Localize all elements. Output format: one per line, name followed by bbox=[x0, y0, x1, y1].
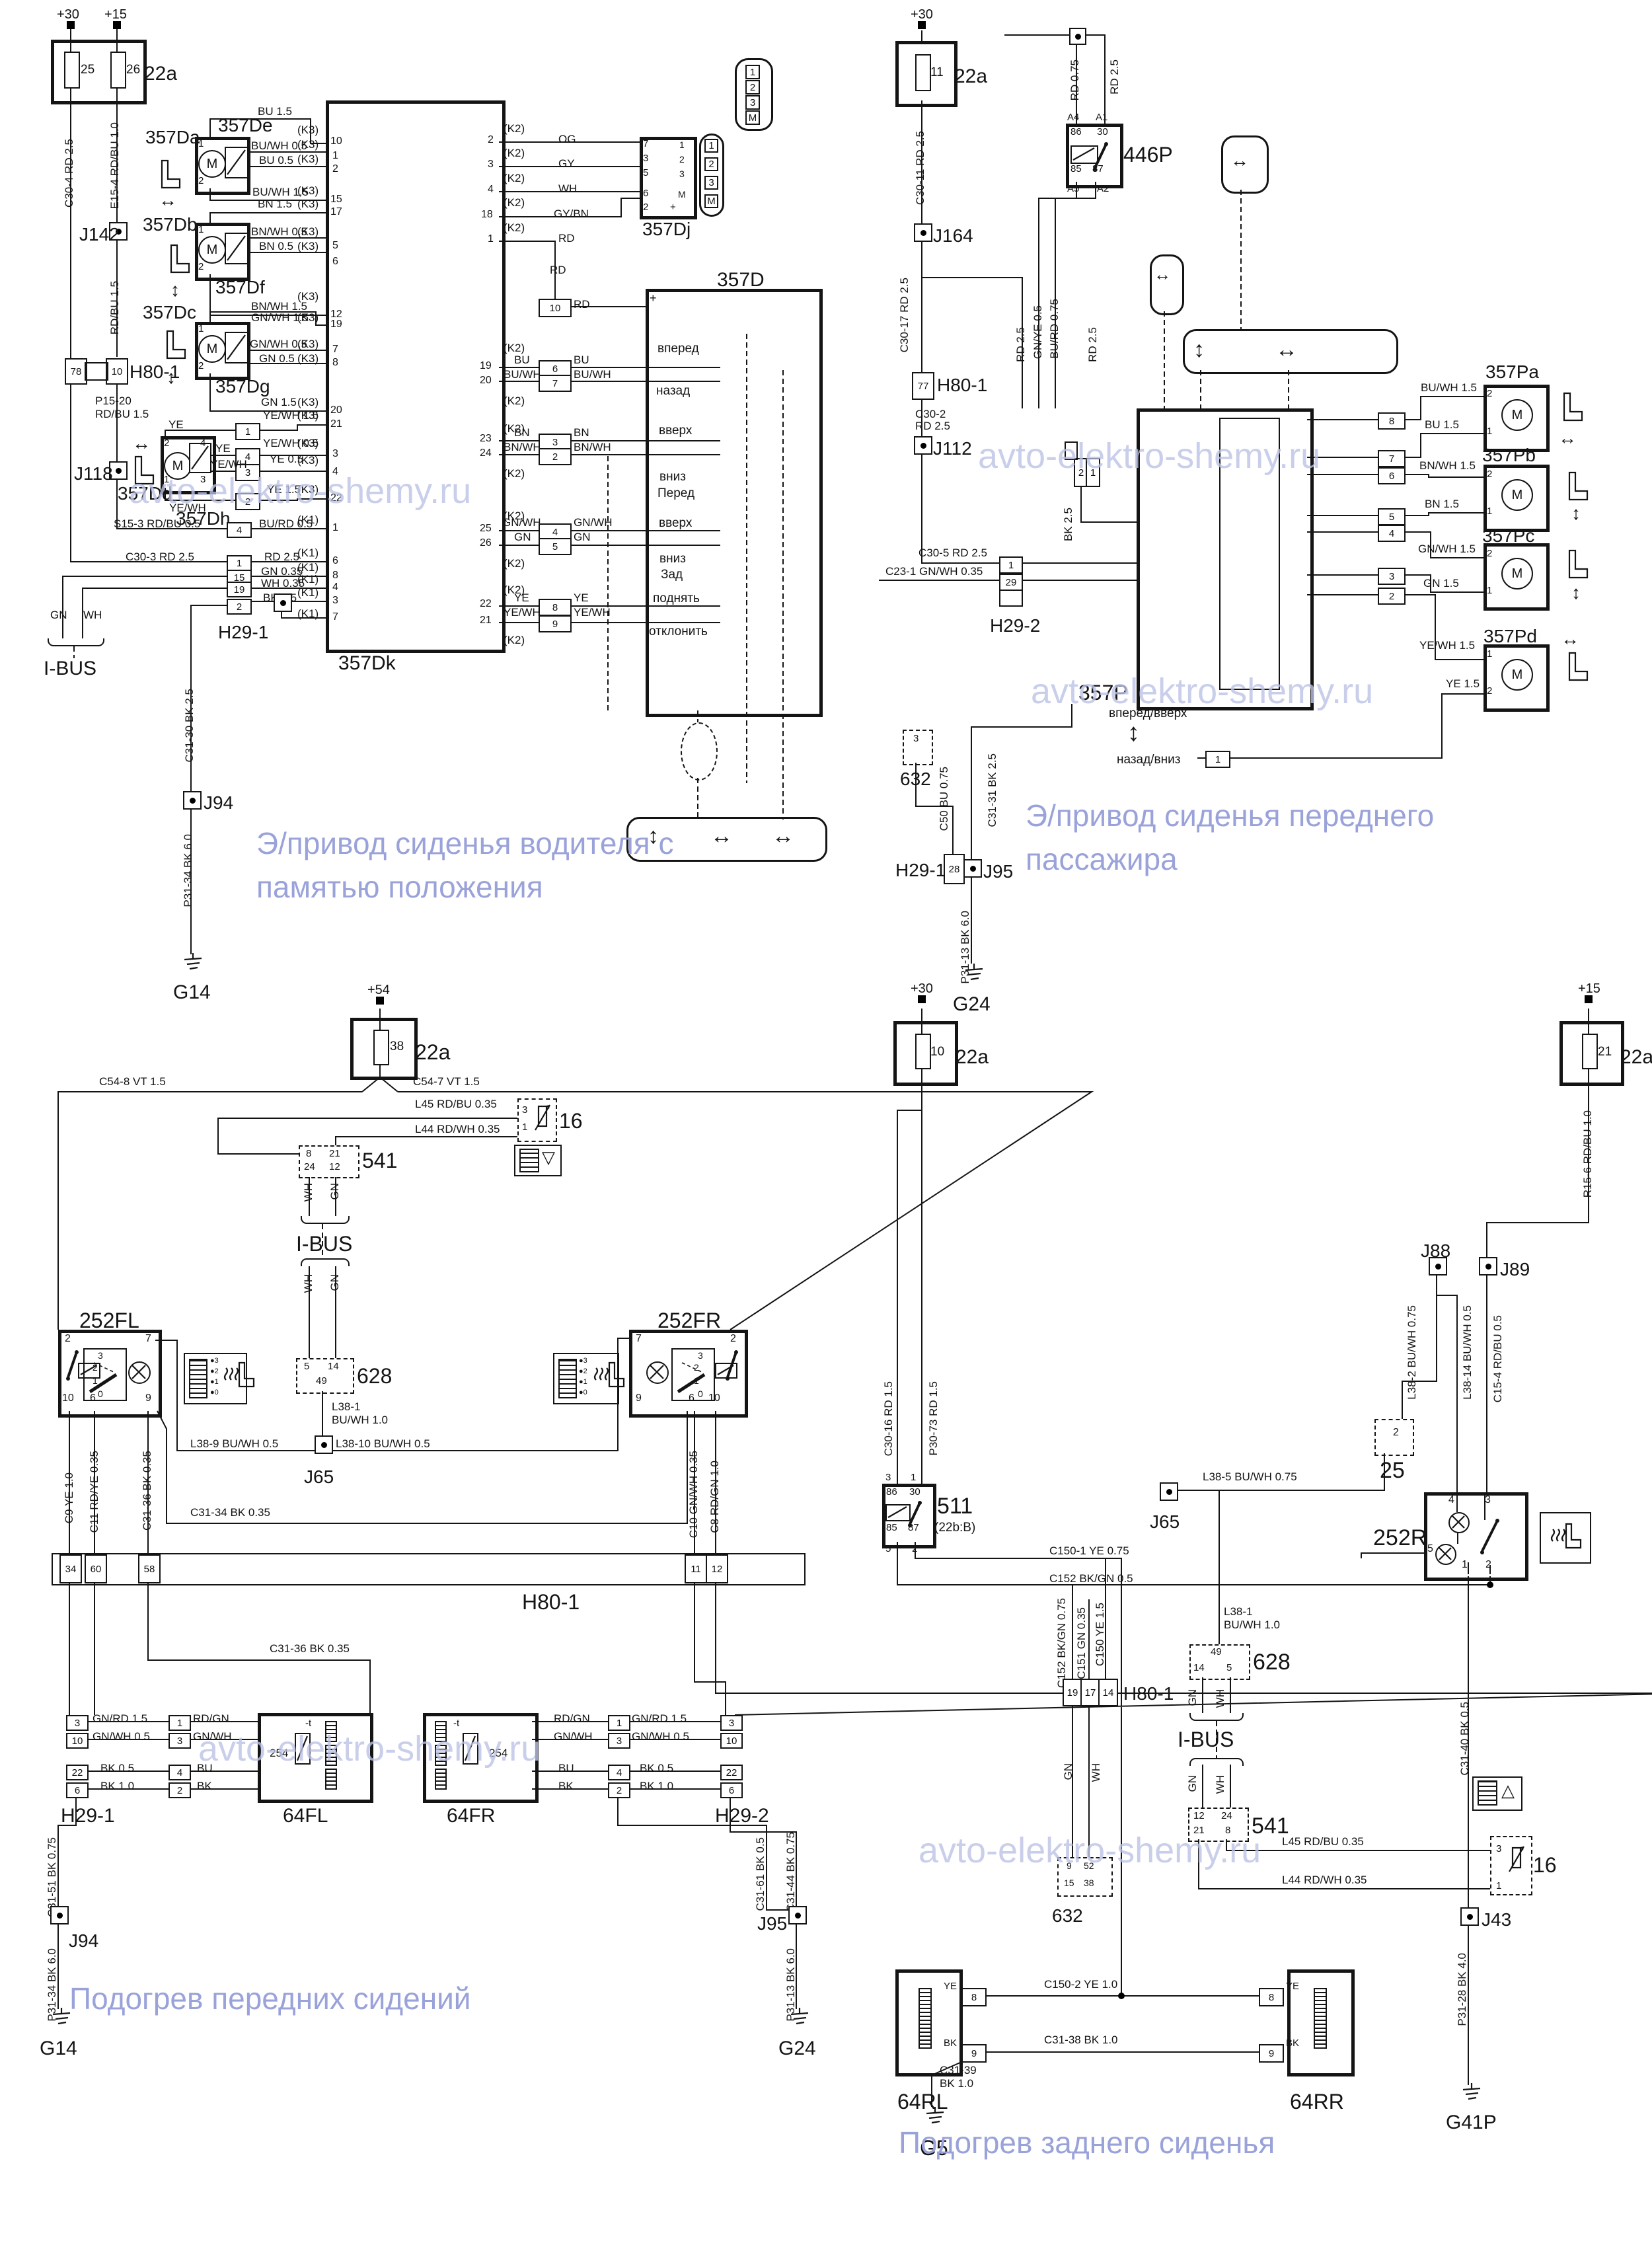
pk1-7: 7 bbox=[332, 612, 338, 623]
h29-1-q1-pin19: 19 bbox=[227, 582, 252, 597]
k2b-6: (K2) bbox=[504, 558, 525, 570]
module-628-q3-p5: 5 bbox=[304, 1361, 309, 1372]
dir-vverh1: вверх bbox=[659, 424, 692, 438]
w-og: OG bbox=[558, 133, 576, 145]
relay-446p-86: 86 bbox=[1070, 127, 1082, 137]
w-gn-ibus-q1: GN bbox=[50, 609, 67, 621]
fl-d2: 2 bbox=[93, 1363, 98, 1373]
sensor-16-q3-pin1: 1 bbox=[522, 1122, 527, 1133]
w-c31-31: C31-31 BK 2.5 bbox=[987, 753, 998, 827]
adjust-arrow-h: ↔ bbox=[710, 825, 733, 849]
ibus-brace-q3-bot bbox=[301, 1258, 350, 1266]
pa-p2: 2 bbox=[1487, 389, 1492, 399]
w-c152-05: C152 BK/GN 0.5 bbox=[1049, 1573, 1133, 1585]
k3-3: (K3) bbox=[297, 153, 319, 165]
h29-2-q2-label: H29-2 bbox=[990, 616, 1040, 635]
arrow-357pb: ↕ bbox=[1571, 504, 1581, 523]
diagram-title-0: Э/привод сиденья водителя с bbox=[256, 827, 674, 859]
pk1-1: 1 bbox=[332, 523, 338, 534]
junction-j118-label: J118 bbox=[74, 464, 113, 483]
fuse-26-label: 26 bbox=[126, 63, 140, 77]
dj-legend-m: M bbox=[704, 194, 718, 208]
fr-d2: 2 bbox=[694, 1363, 699, 1373]
w-bn05: BN 0.5 bbox=[259, 241, 293, 252]
memory-btn-1: 1 bbox=[745, 65, 760, 79]
module-628-q3-p49: 49 bbox=[316, 1376, 327, 1387]
k3-9: (K3) bbox=[297, 312, 319, 324]
adjust-arrow-h2: ↔ bbox=[772, 825, 794, 849]
pk2-18: 18 bbox=[481, 209, 493, 221]
legend-right-heatseat bbox=[592, 1360, 626, 1394]
w-l45-q3: L45 RD/BU 0.35 bbox=[415, 1098, 497, 1110]
switch-252r-box bbox=[1424, 1492, 1528, 1581]
module-541-q3-p24: 24 bbox=[304, 1162, 315, 1172]
w-bk10-l: BK 1.0 bbox=[100, 1780, 134, 1792]
k2a-1: (K2) bbox=[504, 123, 525, 135]
ibus-q3-label: I-BUS bbox=[296, 1233, 352, 1256]
conn-fl-p2: 2 bbox=[169, 1782, 191, 1798]
fl-p2: 2 bbox=[65, 1334, 71, 1345]
w-rdgn-r: RD/GN bbox=[554, 1713, 590, 1725]
conn-fr-p2: 2 bbox=[608, 1782, 630, 1798]
ground-g24-q3 bbox=[788, 2008, 811, 2031]
pcol-6: 6 bbox=[1378, 467, 1406, 484]
seat-icon-357pb bbox=[1565, 471, 1589, 507]
ecu-357dk bbox=[326, 100, 506, 653]
relay-511-label: 511 bbox=[937, 1495, 973, 1519]
supply-15-node bbox=[113, 21, 121, 29]
fuse-21 bbox=[1582, 1034, 1598, 1069]
seat-icon-357pd bbox=[1565, 651, 1589, 687]
h80-1-q4-p14: 14 bbox=[1098, 1679, 1118, 1706]
heater-64rl-p8: 8 bbox=[961, 1988, 987, 2006]
w-gn-q4a: GN bbox=[1063, 1763, 1074, 1780]
h80-1-q1-pin10: 10 bbox=[106, 358, 128, 385]
mini-arrow: ↔ bbox=[1230, 151, 1249, 170]
k3-10: (K3) bbox=[297, 338, 319, 350]
dir-nazad: назад bbox=[656, 385, 690, 398]
w-c31-36a: C31-36 BK 0.35 bbox=[141, 1451, 153, 1531]
memory-btn-3: 3 bbox=[745, 95, 760, 110]
seat-icon-357pa bbox=[1559, 391, 1583, 428]
fuse-11 bbox=[915, 54, 931, 91]
w-c31-39a: C31-39 bbox=[940, 2065, 977, 2076]
relay-511-86: 86 bbox=[886, 1487, 897, 1498]
h29-2-q2-pin29: 29 bbox=[999, 574, 1023, 591]
conn-fl-p4: 4 bbox=[169, 1765, 191, 1780]
dj-p6: 6 bbox=[643, 188, 648, 199]
w-gnrd15-l: GN/RD 1.5 bbox=[93, 1713, 147, 1725]
w-bk25-q2: BK 2.5 bbox=[1063, 508, 1074, 541]
junction-j43-label: J43 bbox=[1482, 1910, 1511, 1929]
dir-podnyat: поднять bbox=[653, 592, 700, 605]
conn-fl-p3: 3 bbox=[169, 1733, 191, 1749]
wiring-diagram-page: +30+15252622aC30-4 RD 2.5E15-4 RD/BU 1.0… bbox=[0, 0, 1652, 2247]
h80-1-q1-pin78: 78 bbox=[65, 358, 87, 385]
relay-511-p2: 2 bbox=[912, 1544, 917, 1554]
c-357d-plus: + bbox=[650, 292, 657, 305]
conn-632-q2-label: 632 bbox=[900, 769, 931, 788]
pb-p1: 1 bbox=[1487, 506, 1492, 517]
h29-1-q3-p6: 6 bbox=[66, 1782, 89, 1798]
c-357dd-pin2: 2 bbox=[164, 438, 169, 449]
fusebox-22a-q4r-label: 22a bbox=[1620, 1047, 1652, 1068]
w-ye-a: YE bbox=[169, 419, 184, 431]
pk3-1: 1 bbox=[332, 151, 338, 162]
thermistor-icon-q3 bbox=[534, 1102, 551, 1136]
k1-1: (K1) bbox=[297, 514, 319, 526]
w-bk05-r: BK 0.5 bbox=[640, 1763, 673, 1774]
display-icon-q3-bars bbox=[519, 1149, 539, 1172]
w-c30-3: C30-3 RD 2.5 bbox=[126, 551, 194, 563]
pk3-8: 8 bbox=[332, 358, 338, 369]
heater-64rr-p8: 8 bbox=[1259, 1988, 1284, 2006]
legend-left-3: ●3 bbox=[210, 1357, 219, 1365]
dir-pered: Перед bbox=[657, 487, 695, 500]
ibus-brace-q1 bbox=[48, 638, 104, 646]
relay-446p-a2: A2 bbox=[1097, 184, 1109, 194]
pk3-10: 10 bbox=[330, 136, 342, 147]
w-c23-1: C23-1 GN/WH 0.35 bbox=[885, 566, 983, 578]
supply-30-q4-label: +30 bbox=[911, 982, 933, 996]
legend-left-0: ●0 bbox=[210, 1389, 219, 1397]
pk1-8: 8 bbox=[332, 570, 338, 582]
pd-p1: 1 bbox=[1487, 649, 1492, 660]
heater-64fl-label: 64FL bbox=[283, 1806, 328, 1827]
k1-4: (K1) bbox=[297, 574, 319, 586]
dir-otklonit: отклонить bbox=[649, 625, 708, 638]
h80-1-q4-p19: 19 bbox=[1063, 1679, 1082, 1706]
heater-64fr-label: 64FR bbox=[447, 1806, 495, 1827]
ground-g41p-label: G41P bbox=[1446, 2112, 1497, 2133]
display-icon-q3-tri: ▽ bbox=[542, 1149, 555, 1166]
relay-511-note: (22b:B) bbox=[934, 1521, 975, 1535]
w-yewh-l: YE/WH bbox=[504, 607, 541, 619]
w-c30-11: C30-11 RD 2.5 bbox=[915, 131, 926, 205]
w-rd25: RD 2.5 bbox=[264, 551, 299, 563]
cell-7: 7 bbox=[539, 375, 572, 392]
w-wh-q4b: WH bbox=[1215, 1689, 1226, 1708]
relay-446p-a1: A1 bbox=[1096, 112, 1108, 123]
w-bn15-q2: BN 1.5 bbox=[1425, 498, 1459, 510]
module-541-q4-p12: 12 bbox=[1193, 1811, 1205, 1821]
ibus-brace-q4-bot bbox=[1189, 1758, 1244, 1766]
relay-511-p3: 3 bbox=[885, 1472, 891, 1483]
w-gnrd15-r: GN/RD 1.5 bbox=[632, 1713, 687, 1725]
w-c30-2b: RD 2.5 bbox=[915, 420, 950, 432]
dir-vniz2: вниз bbox=[659, 552, 686, 566]
heater-64rr-p9: 9 bbox=[1259, 2044, 1284, 2063]
k2a-4: (K2) bbox=[504, 197, 525, 209]
conn-fl-p1: 1 bbox=[169, 1715, 191, 1731]
fuse-11-label: 11 bbox=[930, 66, 944, 79]
k1-5: (K1) bbox=[297, 587, 319, 599]
sensor-16-q3-label: 16 bbox=[559, 1110, 583, 1133]
k3-12: (K3) bbox=[297, 397, 319, 408]
arrow-357da: ↔ bbox=[159, 190, 177, 209]
junction-j65-q3-label: J65 bbox=[304, 1467, 334, 1486]
supply-15-q4-node bbox=[1585, 995, 1593, 1003]
relay-511-85: 85 bbox=[886, 1523, 897, 1533]
c-357pb-motor: M bbox=[1501, 479, 1533, 511]
cell-10: 10 bbox=[539, 299, 572, 317]
c-357da-label: 357Da bbox=[145, 128, 200, 147]
fuse-21-label: 21 bbox=[1598, 1046, 1612, 1059]
w-p15-20b: RD/BU 1.5 bbox=[95, 408, 149, 420]
display-icon-q4-bars bbox=[1478, 1780, 1497, 1806]
w-c31-61: C31-61 BK 0.5 bbox=[755, 1837, 767, 1911]
junction-j112-label: J112 bbox=[933, 439, 972, 458]
w-wh-q4a: WH bbox=[1090, 1763, 1102, 1782]
panel-arrow-h: ↔ bbox=[1275, 338, 1298, 362]
w-l38-1d: BU/WH 1.0 bbox=[1224, 1619, 1280, 1631]
dj-plus: + bbox=[670, 202, 676, 213]
c-357d-label: 357D bbox=[717, 270, 765, 291]
ground-g14-q1 bbox=[182, 953, 204, 976]
ibus-q1-label: I-BUS bbox=[44, 658, 96, 679]
junction-j164-label: J164 bbox=[933, 226, 973, 245]
w-rdgn-l: RD/GN bbox=[193, 1713, 229, 1725]
w-rd25-c: RD 2.5 bbox=[1087, 327, 1099, 362]
h80-1-q3-label: H80-1 bbox=[522, 1591, 580, 1614]
pk3-3: 3 bbox=[332, 449, 338, 460]
ground-g24-q3-label: G24 bbox=[778, 2038, 816, 2059]
c-357pb-label: 357Pb bbox=[1482, 445, 1536, 465]
w-bk05-l: BK 0.5 bbox=[100, 1763, 134, 1774]
k3-4: (K3) bbox=[297, 185, 319, 197]
ibus-brace-q4-top bbox=[1189, 1713, 1244, 1721]
junction-j89 bbox=[1479, 1257, 1497, 1276]
module-628-q3-label: 628 bbox=[357, 1365, 392, 1388]
legend-right-3: ●3 bbox=[579, 1357, 587, 1365]
relay-511-p1: 1 bbox=[911, 1472, 916, 1483]
relay-446p-85: 85 bbox=[1070, 164, 1082, 174]
w-burd075: BU/RD 0.75 bbox=[1049, 299, 1061, 359]
w-c9: C9 YE 1.0 bbox=[63, 1472, 75, 1523]
k1-6: (K1) bbox=[297, 608, 319, 620]
module-628-q4-label: 628 bbox=[1253, 1651, 1291, 1675]
dj-legend-3: 3 bbox=[704, 176, 718, 190]
r-p2: 2 bbox=[1485, 1560, 1491, 1571]
arrow-357pd: ↔ bbox=[1561, 629, 1579, 648]
r-p4: 4 bbox=[1448, 1495, 1454, 1506]
w-buwh-r: BU/WH bbox=[574, 369, 611, 381]
pk1-4: 4 bbox=[332, 582, 338, 593]
h29-1-q1-pin2: 2 bbox=[227, 599, 252, 615]
panel-arrow-v: ↕ bbox=[1193, 338, 1205, 362]
w-bnwh15-q2: BN/WH 1.5 bbox=[1419, 460, 1476, 472]
w-bnwh-r: BN/WH bbox=[574, 441, 611, 453]
conn-632-q2-pin3: 3 bbox=[913, 734, 919, 744]
dot-ye-join bbox=[1118, 1993, 1125, 1999]
ecu-357dk-label: 357Dk bbox=[338, 653, 396, 674]
junction-j65-q4-label: J65 bbox=[1150, 1512, 1180, 1531]
pk2-1: 1 bbox=[488, 234, 494, 245]
dir-arrow-q2: ↕ bbox=[1127, 720, 1140, 747]
relay-446p-87: 87 bbox=[1092, 164, 1104, 174]
cell-5: 5 bbox=[539, 538, 572, 555]
conn-fr-p4: 4 bbox=[608, 1765, 630, 1780]
pk2-23: 23 bbox=[480, 434, 492, 445]
sensor-16-q4-p1: 1 bbox=[1496, 1881, 1501, 1891]
ground-g14-q1-label: G14 bbox=[173, 982, 211, 1003]
junction-j88 bbox=[1429, 1257, 1447, 1276]
w-c150: C150 YE 1.5 bbox=[1094, 1603, 1106, 1666]
k3-11: (K3) bbox=[297, 353, 319, 365]
dj-c2: 2 bbox=[679, 155, 685, 165]
w-s15-3: S15-3 RD/BU 0.5 bbox=[114, 518, 200, 530]
cell-8: 8 bbox=[539, 599, 572, 616]
k3-7: (K3) bbox=[297, 241, 319, 252]
w-c31-44: C31-44 BK 0.75 bbox=[785, 1832, 797, 1912]
dir-nazad-vniz: назад/вниз bbox=[1117, 753, 1180, 767]
fl-dial bbox=[83, 1348, 127, 1401]
w-l38-1a: L38-1 bbox=[332, 1401, 360, 1413]
pk3-5: 5 bbox=[332, 241, 338, 252]
switch-357dj-label: 357Dj bbox=[642, 219, 691, 239]
h80-1-q4-p17: 17 bbox=[1080, 1679, 1100, 1706]
h29-1-q2-pin28: 28 bbox=[944, 854, 965, 884]
relay-446p-label: 446P bbox=[1123, 144, 1173, 167]
pk1-6: 6 bbox=[332, 556, 338, 567]
supply-30-q2-label: +30 bbox=[911, 8, 933, 22]
fr-d0: 0 bbox=[698, 1389, 703, 1399]
pcol-8: 8 bbox=[1378, 412, 1406, 430]
h29-1-q3-p3: 3 bbox=[66, 1715, 89, 1731]
supply-30-q4-node bbox=[918, 995, 926, 1003]
w-p15-20a: P15-20 bbox=[95, 395, 131, 407]
pk3-2: 2 bbox=[332, 164, 338, 175]
w-bu-l: BU bbox=[514, 354, 530, 366]
diagram-title-2: Э/привод сиденья переднего bbox=[1026, 800, 1434, 831]
supply-30-label: +30 bbox=[57, 8, 79, 22]
dj-legend-1: 1 bbox=[704, 139, 718, 153]
diagram-title-3: пассажира bbox=[1026, 843, 1178, 875]
k2b-4: (K2) bbox=[504, 468, 525, 480]
module-541-q4-p24: 24 bbox=[1221, 1811, 1232, 1821]
w-bn-l: BN bbox=[514, 427, 530, 439]
cell-9: 9 bbox=[539, 615, 572, 632]
k2a-2: (K2) bbox=[504, 147, 525, 159]
fuse-26 bbox=[110, 52, 126, 89]
legend-left-heatseat bbox=[222, 1360, 256, 1394]
c-357dc-motor: M bbox=[198, 335, 226, 363]
fl-p9: 9 bbox=[145, 1393, 151, 1404]
k2a-5: (K2) bbox=[504, 222, 525, 234]
w-bnwh-l: BN/WH bbox=[504, 441, 541, 453]
ground-g24-q2 bbox=[963, 964, 985, 987]
dj-p5: 5 bbox=[643, 168, 648, 178]
pc-p2: 2 bbox=[1487, 549, 1492, 559]
fusebox-22a-q3-label: 22a bbox=[415, 1042, 450, 1064]
w-l44-q4: L44 RD/WH 0.35 bbox=[1282, 1874, 1367, 1886]
w-gn-q4c: GN bbox=[1187, 1775, 1199, 1792]
module-541-q3-p12: 12 bbox=[329, 1162, 340, 1172]
w-gnwh-r: GN/WH bbox=[574, 517, 613, 529]
pd-p2: 2 bbox=[1487, 686, 1492, 697]
w-c31-36b: C31-36 BK 0.35 bbox=[270, 1643, 350, 1655]
junction-j94-q1 bbox=[183, 791, 202, 810]
junction-j95-q2-label: J95 bbox=[983, 862, 1013, 881]
junction-j112 bbox=[914, 436, 932, 455]
supply-54-node bbox=[376, 997, 384, 1005]
fl-lamp bbox=[128, 1361, 151, 1384]
r-switch-arm bbox=[1479, 1517, 1501, 1556]
display-icon-q4-tri: △ bbox=[1501, 1782, 1515, 1800]
heater-64fl-t: -t bbox=[305, 1718, 311, 1729]
w-gn05: GN 0.5 bbox=[259, 353, 295, 365]
heat-icon-252r bbox=[1549, 1521, 1583, 1555]
junction-j95-q3-label: J95 bbox=[757, 1914, 787, 1933]
diagram-title-5: Подогрев заднего сиденья bbox=[899, 2127, 1275, 2158]
c-357dc-label: 357Dc bbox=[143, 303, 196, 322]
pk1-3: 3 bbox=[332, 595, 338, 607]
fr-d1: 1 bbox=[694, 1376, 699, 1386]
w-p31-34: P31-34 BK 6.0 bbox=[182, 834, 194, 907]
w-gnwh05-l: GN/WH 0.5 bbox=[93, 1731, 150, 1743]
site-watermark-4: avto-elektro-shemy.ru bbox=[919, 1832, 1261, 1870]
conn-fr-p3: 3 bbox=[608, 1733, 630, 1749]
pcol-7: 7 bbox=[1378, 450, 1406, 467]
w-c54-7: C54-7 VT 1.5 bbox=[413, 1076, 480, 1088]
w-rdbu-15: RD/BU 1.5 bbox=[109, 281, 121, 334]
w-gnwh15-q2: GN/WH 1.5 bbox=[1418, 543, 1476, 555]
legend-right-bars bbox=[558, 1359, 577, 1398]
relay-446p-a5: A5 bbox=[1067, 184, 1079, 194]
k3-5: (K3) bbox=[297, 198, 319, 210]
dj-c3: 3 bbox=[679, 169, 685, 179]
site-watermark-0: avto-elektro-shemy.ru bbox=[129, 473, 471, 510]
h29-1-q1-pin4: 4 bbox=[227, 522, 252, 538]
h80-1-q2-label: H80-1 bbox=[937, 375, 987, 395]
dir-vniz1: вниз bbox=[659, 471, 686, 484]
supply-15-q4-label: +15 bbox=[1578, 982, 1600, 996]
relay-446p-30: 30 bbox=[1097, 127, 1108, 137]
w-c152-075: C152 BK/GN 0.75 bbox=[1056, 1598, 1068, 1688]
h29-2-q3-label: H29-2 bbox=[715, 1806, 769, 1827]
arrow-357dd: ↔ bbox=[132, 434, 151, 453]
dj-c1: 1 bbox=[679, 140, 685, 150]
junction-j65-q3 bbox=[315, 1435, 333, 1454]
k2b-1: (K2) bbox=[504, 342, 525, 354]
k3-13: (K3) bbox=[297, 410, 319, 422]
legend-right-0: ●0 bbox=[579, 1389, 587, 1397]
joystick-knob bbox=[681, 722, 718, 781]
fl-p10: 10 bbox=[62, 1393, 74, 1404]
conn-fr-p1: 1 bbox=[608, 1715, 630, 1731]
k3-15: (K3) bbox=[297, 455, 319, 467]
pk2-26: 26 bbox=[480, 538, 492, 549]
h29-2-q2-pin1: 1 bbox=[999, 556, 1023, 574]
junction-j142-label: J142 bbox=[79, 225, 120, 244]
w-yewh-r: YE/WH bbox=[574, 607, 611, 619]
dj-legend-2: 2 bbox=[704, 157, 718, 171]
pk3-19: 19 bbox=[330, 319, 342, 330]
fuse-38-label: 38 bbox=[390, 1040, 404, 1053]
c-357db-sensor bbox=[225, 233, 248, 264]
w-gn-2: GN bbox=[329, 1274, 341, 1291]
w-ye-b: YE bbox=[215, 443, 231, 455]
c-357db-pin1: 1 bbox=[198, 225, 204, 235]
fuse-25-label: 25 bbox=[81, 63, 94, 77]
r-p3: 3 bbox=[1485, 1495, 1491, 1506]
fuse-38 bbox=[373, 1030, 389, 1065]
w-wh: WH bbox=[558, 183, 577, 195]
w-l38-1b: BU/WH 1.0 bbox=[332, 1414, 388, 1426]
ibus-q4-label: I-BUS bbox=[1178, 1729, 1234, 1751]
dj-p7: 7 bbox=[643, 139, 648, 149]
w-wh-ibus-q1: WH bbox=[83, 609, 102, 621]
